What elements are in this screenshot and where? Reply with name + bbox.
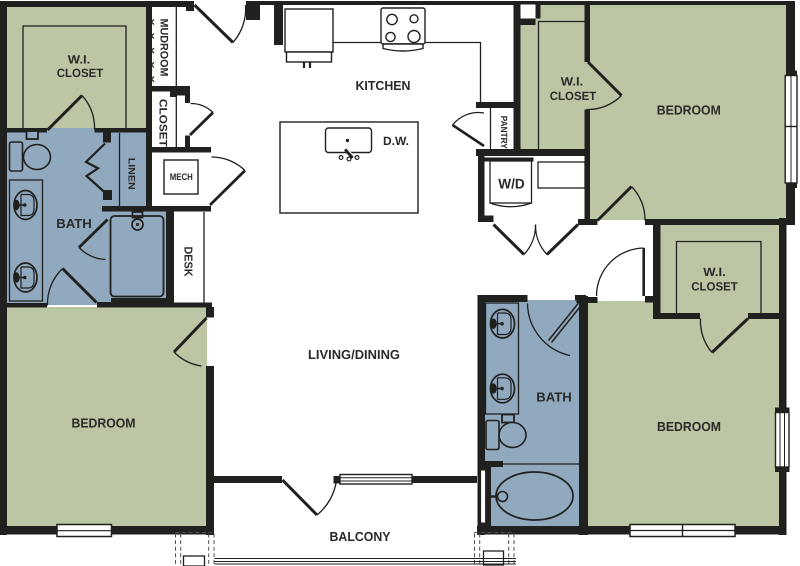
svg-text:MECH: MECH (170, 172, 193, 183)
svg-text:MUDROOM: MUDROOM (158, 19, 170, 77)
svg-text:PANTRY: PANTRY (499, 116, 509, 149)
svg-text:KITCHEN: KITCHEN (356, 78, 411, 93)
svg-text:BEDROOM: BEDROOM (657, 102, 721, 117)
svg-text:W/D: W/D (498, 176, 525, 192)
svg-text:BATH: BATH (536, 390, 572, 405)
svg-text:LINEN: LINEN (126, 158, 137, 190)
svg-text:W.I.: W.I. (561, 75, 584, 89)
svg-text:BEDROOM: BEDROOM (657, 419, 721, 434)
svg-text:CLOSET: CLOSET (550, 89, 597, 103)
svg-text:W.I.: W.I. (68, 53, 91, 67)
svg-text:BALCONY: BALCONY (330, 529, 391, 544)
svg-text:LIVING/DINING: LIVING/DINING (308, 347, 400, 362)
svg-text:BEDROOM: BEDROOM (72, 416, 136, 431)
svg-text:DESK: DESK (182, 247, 194, 278)
svg-text:CLOSET: CLOSET (57, 66, 104, 80)
svg-text:CLOSET: CLOSET (157, 99, 169, 147)
svg-text:BATH: BATH (56, 216, 92, 231)
svg-text:W.I.: W.I. (703, 265, 726, 279)
svg-text:CLOSET: CLOSET (691, 280, 738, 294)
svg-text:D.W.: D.W. (383, 134, 409, 148)
